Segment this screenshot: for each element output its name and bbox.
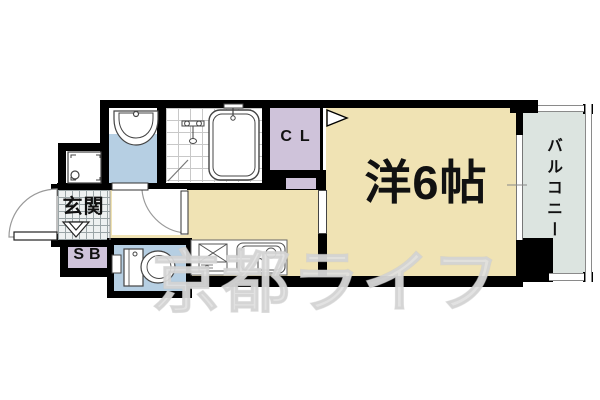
wall <box>51 184 58 196</box>
watermark: 京都ライフ <box>152 243 502 325</box>
wall <box>516 238 553 282</box>
wall <box>157 108 166 183</box>
wall <box>100 100 523 108</box>
floor-plan: 玄関 SB CL 洋6帖 バルコニー 京都ライフ <box>0 0 600 400</box>
wall <box>107 238 114 298</box>
washroom-top-white <box>109 108 157 134</box>
room-door-leaf <box>318 190 327 234</box>
main-room-label: 洋6帖 <box>336 159 516 206</box>
room-washing-machine <box>66 151 101 183</box>
window-icon <box>516 135 523 240</box>
entrance-label: 玄関 <box>57 197 110 217</box>
closet-label: CL <box>268 129 322 145</box>
balcony-railing-top <box>538 105 584 112</box>
balcony-railing-bottom <box>549 273 584 281</box>
balcony-railing-right <box>585 104 592 282</box>
shoebox-label: SB <box>66 247 108 263</box>
wall <box>60 268 113 277</box>
entrance-door-icon <box>9 189 57 240</box>
closet-door-icon <box>286 178 316 189</box>
wall <box>510 100 538 113</box>
balcony-label: バルコニー <box>544 137 560 242</box>
room-bathroom <box>166 108 262 182</box>
